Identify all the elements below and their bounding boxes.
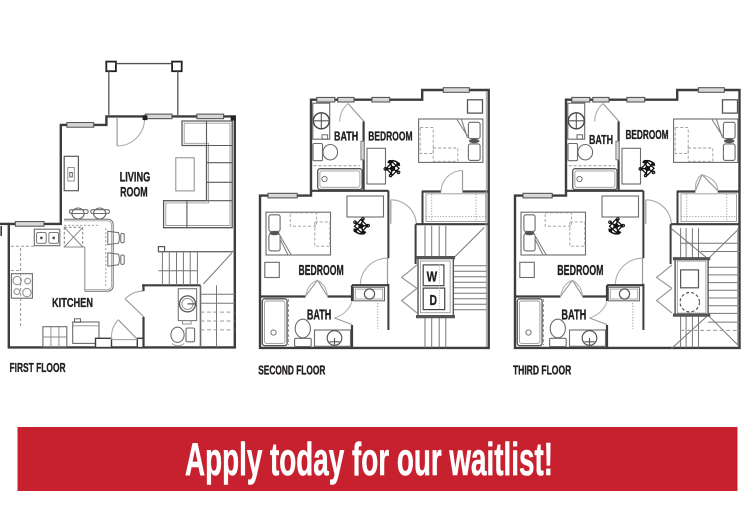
svg-text:ROOM: ROOM [120,185,148,200]
svg-text:Apply today for our waitlist!: Apply today for our waitlist! [185,433,553,485]
svg-text:BEDROOM: BEDROOM [368,129,412,144]
svg-text:BEDROOM: BEDROOM [299,263,344,279]
svg-text:D: D [429,292,437,309]
svg-text:BEDROOM: BEDROOM [625,127,668,142]
svg-text:BATH: BATH [334,129,358,144]
svg-text:FIRST FLOOR: FIRST FLOOR [10,360,66,375]
svg-text:LIVING: LIVING [120,170,151,185]
svg-text:BEDROOM: BEDROOM [557,263,603,279]
svg-text:THIRD FLOOR: THIRD FLOOR [513,363,572,378]
svg-text:W: W [427,268,438,285]
svg-text:KITCHEN: KITCHEN [52,295,93,310]
svg-text:BATH: BATH [307,308,331,324]
svg-text:SECOND FLOOR: SECOND FLOOR [258,363,325,378]
svg-text:BATH: BATH [589,132,613,147]
svg-text:BATH: BATH [561,307,586,323]
